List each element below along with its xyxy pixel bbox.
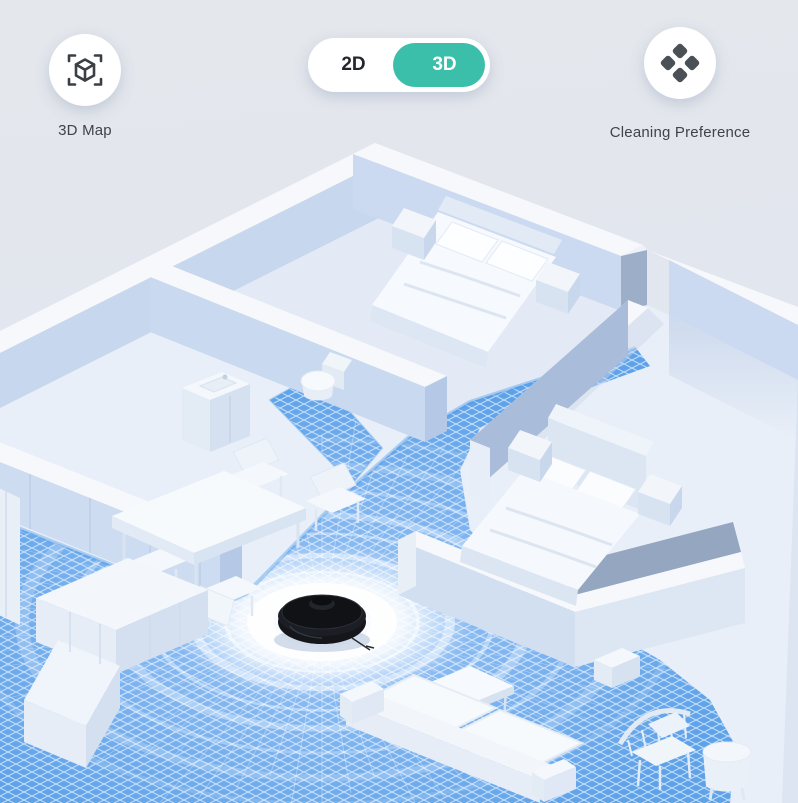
view-mode-toggle[interactable]: 2D 3D — [308, 38, 490, 92]
side-stool — [703, 742, 751, 800]
3d-map-label: 3D Map — [58, 122, 112, 139]
3d-map-button[interactable] — [49, 34, 121, 106]
toggle-option-3d[interactable]: 3D — [399, 54, 490, 76]
cube-scan-icon — [66, 51, 104, 89]
four-diamonds-icon — [659, 42, 701, 84]
map-viewport[interactable] — [0, 0, 798, 803]
toggle-option-2d[interactable]: 2D — [308, 54, 399, 76]
cleaning-preference-button[interactable] — [644, 27, 716, 99]
app-screen: 3D Map 2D 3D Cleaning Preference — [0, 0, 798, 803]
cleaning-preference-label: Cleaning Preference — [610, 124, 751, 141]
wall-corner — [621, 245, 647, 311]
bathroom-vanity — [182, 372, 250, 452]
